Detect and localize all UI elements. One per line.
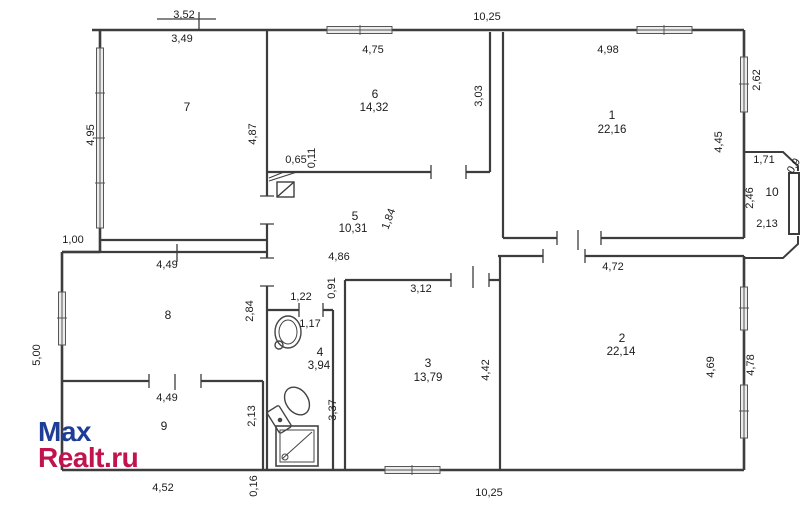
dimension-label: 2,84 xyxy=(244,300,256,321)
room-area-label: 13,79 xyxy=(414,372,443,384)
dimension-label: 0,16 xyxy=(248,475,260,496)
room-number-label: 1 xyxy=(609,108,616,122)
room-number-label: 8 xyxy=(165,308,172,322)
dimension-label: 4,49 xyxy=(156,259,177,271)
dimension-label: 4,52 xyxy=(152,482,173,494)
room-number-label: 9 xyxy=(161,419,168,433)
room-number-label: 6 xyxy=(372,87,379,101)
dimension-label: 4,75 xyxy=(362,44,383,56)
dimension-label: 1,84 xyxy=(380,207,399,231)
dimension-label: 2,62 xyxy=(751,69,763,90)
dimension-label: 4,95 xyxy=(85,124,97,145)
dimension-label: 4,72 xyxy=(602,261,623,273)
room-number-label: 4 xyxy=(317,345,324,359)
dimension-label: 3,52 xyxy=(173,9,194,21)
dimension-label: 2,13 xyxy=(756,218,777,230)
dimension-label: 2,13 xyxy=(246,405,258,426)
room-area-label: 10,31 xyxy=(339,223,368,235)
dimension-label: 0,65 xyxy=(285,154,306,166)
dimension-label: 4,42 xyxy=(480,359,492,380)
room-area-label: 14,32 xyxy=(360,102,389,114)
room-number-label: 2 xyxy=(619,331,626,345)
room-area-label: 22,16 xyxy=(598,124,627,136)
dimension-label: 1,17 xyxy=(299,318,320,330)
dimension-label: 3,49 xyxy=(171,33,192,45)
dimension-label: 3,37 xyxy=(327,399,339,420)
watermark: Max Realt.ru xyxy=(38,419,138,472)
dimension-label: 0,91 xyxy=(326,277,338,298)
floorplan-page: 7614,32122,16510,318943,94313,79222,1410… xyxy=(0,0,800,506)
dimension-label: 4,49 xyxy=(156,392,177,404)
dimension-label: 1,71 xyxy=(753,154,774,166)
dimension-label: 5,00 xyxy=(31,344,43,365)
room-number-label: 3 xyxy=(425,356,432,370)
dimension-label: 4,69 xyxy=(705,356,717,377)
dimension-label: 3,03 xyxy=(473,85,485,106)
dimension-label: 0,11 xyxy=(306,148,318,169)
room-area-label: 22,14 xyxy=(607,346,636,358)
dimension-label: 0,9 xyxy=(785,156,800,175)
dimension-label: 1,00 xyxy=(62,234,83,246)
watermark-line2: Realt.ru xyxy=(38,445,138,471)
room-number-label: 5 xyxy=(352,209,359,223)
dimension-label: 2,46 xyxy=(744,187,756,208)
dimension-label: 10,25 xyxy=(473,11,501,23)
dimension-label: 4,87 xyxy=(247,123,259,144)
room-area-label: 3,94 xyxy=(308,360,330,372)
dimension-label: 4,78 xyxy=(745,354,757,375)
dimension-label: 3,12 xyxy=(410,283,431,295)
room-number-label: 10 xyxy=(765,185,778,199)
dimension-label: 4,86 xyxy=(328,251,349,263)
dimension-label: 1,22 xyxy=(290,291,311,303)
dimension-label: 10,25 xyxy=(475,487,503,499)
dimension-label: 4,45 xyxy=(713,131,725,152)
dimension-label: 4,98 xyxy=(597,44,618,56)
room-number-label: 7 xyxy=(184,100,191,114)
